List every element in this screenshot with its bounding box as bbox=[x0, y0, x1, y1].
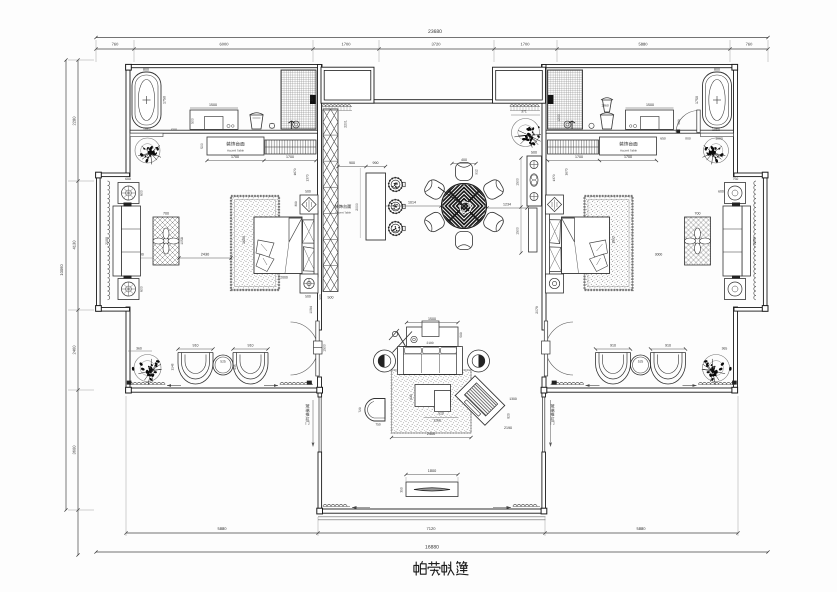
svg-text:2000: 2000 bbox=[355, 203, 359, 211]
svg-text:3600: 3600 bbox=[72, 445, 77, 455]
svg-text:760: 760 bbox=[746, 42, 753, 47]
svg-text:10060: 10060 bbox=[59, 264, 64, 276]
svg-text:500: 500 bbox=[305, 295, 311, 299]
svg-text:1700: 1700 bbox=[521, 42, 531, 47]
svg-text:1750: 1750 bbox=[163, 96, 167, 104]
svg-text:2079: 2079 bbox=[535, 306, 539, 314]
svg-text:525: 525 bbox=[220, 360, 226, 364]
svg-text:1094: 1094 bbox=[309, 306, 313, 314]
svg-text:Accent Table: Accent Table bbox=[227, 149, 244, 153]
svg-text:16880: 16880 bbox=[425, 545, 439, 551]
svg-text:3000: 3000 bbox=[655, 253, 663, 257]
svg-text:2460: 2460 bbox=[72, 345, 77, 355]
svg-text:1700: 1700 bbox=[575, 155, 583, 159]
svg-text:500: 500 bbox=[677, 119, 681, 125]
svg-text:500: 500 bbox=[531, 151, 537, 155]
svg-text:360: 360 bbox=[136, 347, 142, 351]
svg-text:Accent Table: Accent Table bbox=[335, 211, 351, 215]
svg-text:1800: 1800 bbox=[612, 236, 616, 243]
svg-text:1600: 1600 bbox=[242, 236, 246, 244]
svg-text:5880: 5880 bbox=[218, 526, 228, 531]
svg-text:910: 910 bbox=[248, 344, 254, 348]
svg-text:910: 910 bbox=[610, 344, 616, 348]
svg-text:1260: 1260 bbox=[433, 419, 441, 423]
svg-text:2280: 2280 bbox=[72, 116, 77, 126]
svg-text:2190: 2190 bbox=[504, 426, 512, 430]
svg-text:720: 720 bbox=[358, 407, 362, 413]
svg-text:5880: 5880 bbox=[637, 526, 647, 531]
svg-text:4130: 4130 bbox=[72, 240, 77, 250]
svg-text:1500: 1500 bbox=[209, 103, 217, 107]
svg-text:2201: 2201 bbox=[344, 120, 348, 128]
svg-text:3720: 3720 bbox=[432, 42, 442, 47]
svg-text:800: 800 bbox=[685, 137, 691, 141]
svg-text:500: 500 bbox=[459, 332, 463, 338]
svg-text:7120: 7120 bbox=[427, 526, 437, 531]
svg-text:1370: 1370 bbox=[552, 174, 556, 181]
svg-text:1050: 1050 bbox=[712, 128, 720, 132]
svg-text:装饰台面: 装饰台面 bbox=[226, 142, 245, 147]
svg-text:525: 525 bbox=[638, 360, 644, 364]
svg-text:6000: 6000 bbox=[220, 42, 230, 47]
svg-text:990: 990 bbox=[373, 161, 379, 165]
svg-text:1700: 1700 bbox=[624, 155, 632, 159]
svg-text:600: 600 bbox=[125, 177, 131, 181]
svg-text:910: 910 bbox=[193, 344, 199, 348]
svg-text:1750: 1750 bbox=[695, 96, 699, 104]
svg-text:Accent Table: Accent Table bbox=[620, 149, 637, 153]
svg-text:装饰台面: 装饰台面 bbox=[619, 142, 638, 147]
svg-text:1200: 1200 bbox=[310, 94, 314, 102]
svg-text:1500: 1500 bbox=[428, 317, 436, 321]
svg-text:23680: 23680 bbox=[428, 29, 442, 35]
svg-text:750: 750 bbox=[375, 423, 381, 427]
svg-text:300: 300 bbox=[294, 201, 298, 207]
svg-text:2400: 2400 bbox=[427, 432, 435, 436]
svg-text:750: 750 bbox=[733, 177, 739, 181]
svg-text:2000: 2000 bbox=[280, 276, 288, 280]
svg-text:1014: 1014 bbox=[408, 201, 416, 205]
svg-text:1360: 1360 bbox=[601, 104, 609, 108]
svg-text:2100: 2100 bbox=[105, 237, 109, 245]
svg-text:800: 800 bbox=[143, 68, 149, 72]
svg-text:1670: 1670 bbox=[293, 168, 297, 175]
svg-text:500: 500 bbox=[200, 143, 204, 149]
svg-text:装饰台面: 装饰台面 bbox=[335, 204, 352, 209]
svg-text:1000: 1000 bbox=[715, 137, 723, 141]
svg-text:1234: 1234 bbox=[503, 203, 511, 207]
svg-text:1700: 1700 bbox=[286, 155, 294, 159]
svg-text:820: 820 bbox=[507, 413, 511, 419]
svg-text:500: 500 bbox=[319, 294, 323, 300]
svg-text:2430: 2430 bbox=[201, 253, 209, 257]
svg-text:760: 760 bbox=[112, 42, 119, 47]
svg-text:1500: 1500 bbox=[323, 344, 327, 352]
svg-text:700: 700 bbox=[695, 212, 701, 216]
svg-text:910: 910 bbox=[665, 344, 671, 348]
svg-text:1700: 1700 bbox=[342, 42, 352, 47]
svg-text:400: 400 bbox=[461, 158, 467, 162]
svg-text:520: 520 bbox=[438, 412, 444, 416]
svg-text:1058: 1058 bbox=[180, 237, 184, 245]
svg-text:玻璃推拉门: 玻璃推拉门 bbox=[550, 404, 556, 426]
svg-text:600: 600 bbox=[718, 190, 724, 194]
svg-text:800: 800 bbox=[714, 68, 720, 72]
svg-text:1200: 1200 bbox=[557, 114, 561, 122]
svg-text:1670: 1670 bbox=[565, 168, 569, 175]
svg-text:912: 912 bbox=[475, 169, 479, 175]
svg-text:1500: 1500 bbox=[516, 227, 520, 235]
svg-text:1500: 1500 bbox=[646, 103, 654, 107]
svg-text:500: 500 bbox=[305, 190, 311, 194]
svg-text:2100: 2100 bbox=[426, 341, 433, 345]
svg-text:900: 900 bbox=[349, 161, 355, 165]
svg-text:600: 600 bbox=[140, 190, 144, 196]
svg-text:365: 365 bbox=[722, 347, 728, 351]
svg-text:371: 371 bbox=[521, 110, 527, 114]
svg-text:500: 500 bbox=[191, 118, 195, 124]
svg-text:5880: 5880 bbox=[639, 42, 649, 47]
svg-text:1370: 1370 bbox=[306, 174, 310, 181]
svg-text:650: 650 bbox=[660, 137, 666, 141]
svg-text:1700: 1700 bbox=[231, 155, 239, 159]
svg-text:1300: 1300 bbox=[509, 397, 517, 401]
svg-text:1800: 1800 bbox=[428, 469, 436, 473]
svg-text:700: 700 bbox=[163, 212, 169, 216]
svg-text:玻璃推拉门: 玻璃推拉门 bbox=[305, 404, 311, 426]
svg-text:1148: 1148 bbox=[171, 363, 175, 370]
svg-text:500: 500 bbox=[328, 296, 334, 300]
svg-text:2100: 2100 bbox=[753, 237, 757, 245]
svg-text:1500: 1500 bbox=[516, 178, 520, 186]
svg-text:600: 600 bbox=[140, 286, 144, 292]
svg-text:620: 620 bbox=[409, 394, 413, 400]
svg-text:350: 350 bbox=[400, 487, 404, 493]
